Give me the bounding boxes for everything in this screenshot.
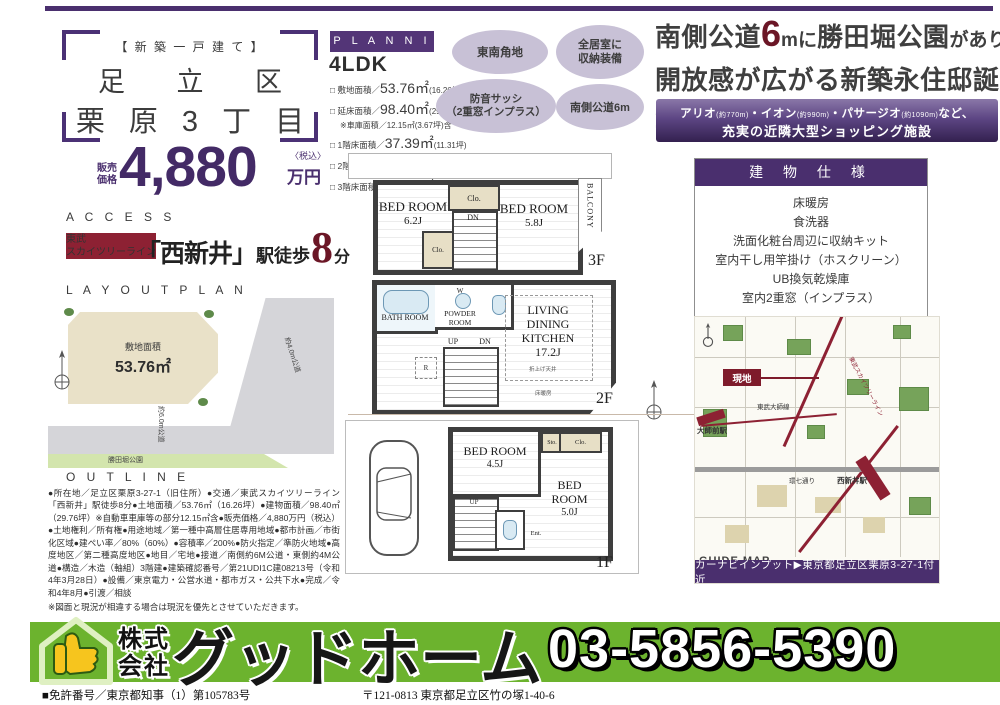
sink-icon (455, 293, 471, 309)
title-box: 【 新 築 一 戸 建 て 】 足 立 区 栗 原 3 丁 目 (62, 30, 318, 142)
stairs-up-label: UP (459, 498, 489, 506)
map-street (745, 317, 746, 557)
top-accent-bar (45, 6, 993, 11)
park-strip (48, 454, 288, 468)
floor-tag-2f: 2F (596, 390, 613, 408)
bathtub-icon (383, 290, 429, 314)
shopping-line1: アリオ(約770m)・イオン(約990m)・パサージオ(約1090m)など、 (656, 105, 998, 121)
map-park (807, 425, 825, 439)
license-number: ■免許番号／東京都知事（1）第105783号 (42, 687, 250, 703)
daishimae-label: 大師前駅 (697, 425, 727, 436)
bedroom-1f-left: BED ROOM 4.5J (455, 444, 535, 472)
closet-box: Clo. (448, 185, 500, 211)
map-park (723, 325, 743, 341)
feature-badge-storage: 全居室に 収納装備 (556, 25, 644, 79)
map-street (695, 517, 939, 518)
outline-section-label: O U T L I N E (66, 470, 189, 484)
kannana-road (695, 467, 939, 472)
floor-heating-note: 床暖房 (535, 389, 552, 397)
plan-row: □ 敷地面積／ 53.76㎡ (16.26坪) (330, 78, 458, 98)
spec-item: 床暖房 (695, 194, 927, 213)
spec-item: UB換気乾燥庫 (695, 270, 927, 289)
bedroom-1f-right: BED ROOM 5.0J (541, 478, 598, 520)
road-south-label: 約6.0m公道 (156, 406, 166, 443)
title-line1: 足 立 区 (62, 60, 318, 99)
floor-plan-2f: BATH ROOM W POWDER ROOM LIVING DINING KI… (372, 280, 616, 415)
plan-type: 4LDK (329, 53, 388, 77)
map-park (893, 325, 911, 339)
feature-badge-soundproof: 防音サッシ （2重窓インプラス） (436, 79, 556, 133)
site-area-value: 53.76㎡ (115, 353, 171, 377)
map-street (845, 317, 846, 557)
shopping-line2: 充実の近隣大型ショッピング施設 (656, 121, 998, 140)
phone-number: 03-5856-5390 (548, 618, 896, 680)
bedroom-3f-right: BED ROOM 5.8J (496, 201, 572, 231)
specs-list: 床暖房 食洗器 洗面化粧台周辺に収納キット 室内干し用竿掛け（ホスクリーン） U… (695, 186, 927, 317)
flyer-page: 【 新 築 一 戸 建 て 】 足 立 区 栗 原 3 丁 目 販売 価格 4,… (0, 0, 1000, 705)
stairs-2f (443, 347, 499, 407)
map-park (899, 387, 929, 411)
price-unit: 万円 (287, 163, 321, 188)
bathroom: BATH ROOM (377, 285, 438, 334)
powder-room: W POWDER ROOM (435, 285, 490, 330)
nishiarai-label: 西新井駅 (837, 475, 867, 486)
site-marker: 現地 (723, 369, 761, 386)
building-specs-box: 建 物 仕 様 床暖房 食洗器 洗面化粧台周辺に収納キット 室内干し用竿掛け（ホ… (694, 158, 928, 318)
spec-item: 室内2重窓（インプラス） (695, 289, 927, 308)
bush-icon (64, 308, 74, 316)
map-street (695, 357, 939, 358)
property-type-tag: 【 新 築 一 戸 建 て 】 (62, 38, 318, 55)
ldk-label: LIVING DINING KITCHEN 17.2J (505, 303, 591, 359)
map-block (863, 517, 885, 533)
station-name: 「西新井」 (136, 234, 256, 270)
park-label: 勝田堀公園 (108, 455, 143, 465)
company-logo-thumbs-up-house-icon (36, 616, 116, 686)
car-navi-banner: カーナビインプット▶東京都足立区栗原3-27-1付近 (695, 560, 939, 583)
company-name: グッドホーム (172, 608, 542, 698)
spec-item: 食洗器 (695, 213, 927, 232)
shopping-banner: アリオ(約770m)・イオン(約990m)・パサージオ(約1090m)など、 充… (656, 99, 998, 142)
company-address: 〒121-0813 東京都足立区竹の塚1-40-6 (362, 687, 555, 703)
walk-label: 駅徒歩 (256, 242, 310, 268)
outline-body: ●所在地／足立区栗原3-27-1（旧住所）●交通／東武スカイツリーライン「西新井… (48, 487, 340, 599)
spec-item: 室内干し用竿掛け（ホスクリーン） (695, 251, 927, 270)
walk-minutes: 8 (311, 226, 333, 270)
company-prefix: 株式 会社 (118, 626, 170, 680)
road-east (216, 298, 334, 444)
site-plan-diagram: 勝田堀公園 敷地面積 53.76㎡ 約4.0m公道 約6.0m公道 (48, 298, 334, 468)
bush-icon (198, 398, 208, 406)
site-area-label: 敷地面積 (125, 340, 161, 353)
access-section-label: A C C E S S (66, 210, 175, 224)
stairs-dn-label: DN (454, 213, 492, 222)
guide-map: 現地 大師前駅 西新井駅 東武大師線 東武スカイツリーライン 環七通り GUID… (694, 316, 940, 584)
closet-box: Clo. (422, 231, 454, 269)
headline-line1: 南側公道 6 mに 勝田堀公園 があり (655, 16, 1000, 54)
entrance-label: Ent. (523, 530, 549, 537)
map-park (787, 339, 811, 355)
kannana-label: 環七通り (789, 475, 815, 485)
planning-tag: P L A N N I N G (330, 31, 434, 52)
stairs-up-label: UP (441, 337, 465, 346)
toilet-room-1f (495, 510, 525, 550)
bedroom-3f-left: BED ROOM 6.2J (378, 199, 448, 229)
map-park (909, 497, 931, 515)
site-marker-leader (761, 377, 819, 379)
daishi-line-label: 東武大師線 (757, 401, 790, 411)
map-block (757, 485, 787, 507)
balcony: BALCONY (578, 178, 602, 252)
site-plot: 敷地面積 53.76㎡ (68, 312, 218, 404)
price-tax-note: 〈税込〉 (290, 149, 326, 162)
closet-box: Clo. (559, 432, 602, 453)
layout-plan-label: L A Y O U T P L A N (66, 283, 247, 297)
price-value: 4,880 (119, 134, 257, 200)
stairs-dn-label: DN (473, 337, 497, 346)
road-south (48, 426, 334, 454)
outline-text: ●所在地／足立区栗原3-27-1（旧住所）●交通／東武スカイツリーライン「西新井… (48, 487, 340, 614)
floor-plan-3f: Clo. DN Clo. BED ROOM 6.2J BED ROOM 5.8J (373, 180, 583, 275)
feature-badge-corner-lot: 東南角地 (452, 30, 548, 74)
walk-unit: 分 (334, 243, 350, 267)
floor-tag-3f: 3F (588, 252, 605, 270)
feature-badge-south-road: 南側公道6m (556, 84, 644, 130)
toilet-icon (503, 520, 517, 540)
spec-item: 洗面化粧台周辺に収納キット (695, 232, 927, 251)
station-access: 「西新井」 駅徒歩 8 分 (136, 226, 350, 270)
roof-outline (348, 153, 612, 179)
compass-icon (701, 323, 715, 347)
floor-plan-1f: Sto. Clo. BED ROOM 4.5J BED ROOM 5.0J UP… (448, 427, 613, 561)
toilet-icon (492, 295, 506, 315)
price-label: 販売 価格 (97, 163, 117, 187)
compass-icon (50, 350, 74, 392)
refrigerator-space: R (415, 357, 437, 379)
car-icon (365, 438, 423, 558)
map-street (900, 317, 901, 557)
map-block (725, 525, 749, 543)
floor-tag-1f: 1F (596, 554, 613, 572)
plan-row: □ 1階床面積／ 37.39㎡ (11.31坪) (330, 133, 458, 153)
plan-row-note: ※車庫面積／12.15㎡(3.67坪)含 (330, 120, 458, 131)
specs-title: 建 物 仕 様 (695, 159, 927, 186)
ceiling-note: 折上げ天井 (529, 365, 557, 373)
bush-icon (204, 310, 214, 318)
compass-icon (642, 380, 666, 422)
